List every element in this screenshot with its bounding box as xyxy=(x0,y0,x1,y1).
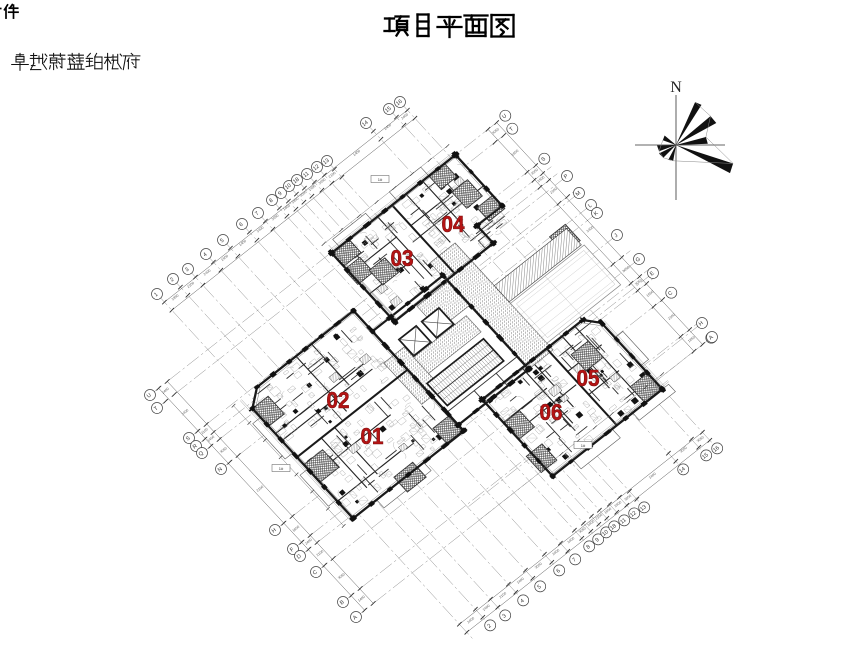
svg-text:04: 04 xyxy=(442,211,465,237)
svg-text:3050: 3050 xyxy=(491,127,500,135)
svg-text:2400: 2400 xyxy=(203,268,212,276)
svg-text:1400: 1400 xyxy=(567,536,576,544)
svg-text:3050: 3050 xyxy=(679,446,688,454)
svg-text:1400: 1400 xyxy=(282,203,291,211)
svg-text:2100: 2100 xyxy=(667,313,676,321)
svg-text:01: 01 xyxy=(361,423,384,449)
svg-text:1400: 1400 xyxy=(181,408,190,416)
svg-text:N: N xyxy=(670,79,682,96)
svg-text:1#: 1# xyxy=(279,466,284,471)
svg-text:2100: 2100 xyxy=(316,549,325,557)
svg-text:2400: 2400 xyxy=(304,538,313,546)
svg-text:2400: 2400 xyxy=(552,548,561,556)
svg-text:1850: 1850 xyxy=(292,525,301,533)
svg-text:1400: 1400 xyxy=(352,149,361,157)
svg-text:2100: 2100 xyxy=(549,187,558,195)
svg-text:1850: 1850 xyxy=(511,149,520,157)
svg-text:1400: 1400 xyxy=(587,519,596,527)
svg-text:1400: 1400 xyxy=(516,577,525,585)
svg-text:1850: 1850 xyxy=(687,335,696,343)
svg-text:2400: 2400 xyxy=(400,112,409,120)
svg-text:1400: 1400 xyxy=(256,225,265,233)
svg-text:3050: 3050 xyxy=(578,526,587,534)
svg-text:2100: 2100 xyxy=(256,485,265,493)
svg-text:2100: 2100 xyxy=(200,427,209,435)
svg-text:1500: 1500 xyxy=(220,254,229,262)
svg-text:3050: 3050 xyxy=(534,562,543,570)
svg-text:05: 05 xyxy=(577,365,600,391)
svg-text:2400: 2400 xyxy=(161,387,170,395)
svg-text:2100: 2100 xyxy=(186,281,195,289)
svg-text:1400: 1400 xyxy=(308,184,317,192)
svg-text:02: 02 xyxy=(327,387,350,413)
svg-text:1#: 1# xyxy=(378,177,383,182)
svg-text:3050: 3050 xyxy=(299,190,308,198)
svg-text:3050: 3050 xyxy=(624,494,633,502)
svg-text:1850: 1850 xyxy=(291,196,300,204)
svg-text:03: 03 xyxy=(391,245,414,271)
svg-text:1400: 1400 xyxy=(207,435,216,443)
svg-text:3050: 3050 xyxy=(337,572,346,580)
svg-text:1#: 1# xyxy=(581,443,586,448)
svg-text:1400: 1400 xyxy=(482,604,491,612)
svg-text:1400: 1400 xyxy=(357,595,366,603)
svg-text:1400: 1400 xyxy=(383,123,392,131)
svg-text:3050: 3050 xyxy=(271,213,280,221)
svg-text:06: 06 xyxy=(540,399,563,425)
svg-text:1500: 1500 xyxy=(537,175,546,183)
svg-text:1400: 1400 xyxy=(238,239,247,247)
svg-text:3050: 3050 xyxy=(219,446,228,454)
svg-text:1400: 1400 xyxy=(648,472,657,480)
svg-text:1500: 1500 xyxy=(604,507,613,515)
svg-text:2100: 2100 xyxy=(595,513,604,521)
svg-text:3050: 3050 xyxy=(318,177,327,185)
svg-text:1850: 1850 xyxy=(171,293,180,301)
